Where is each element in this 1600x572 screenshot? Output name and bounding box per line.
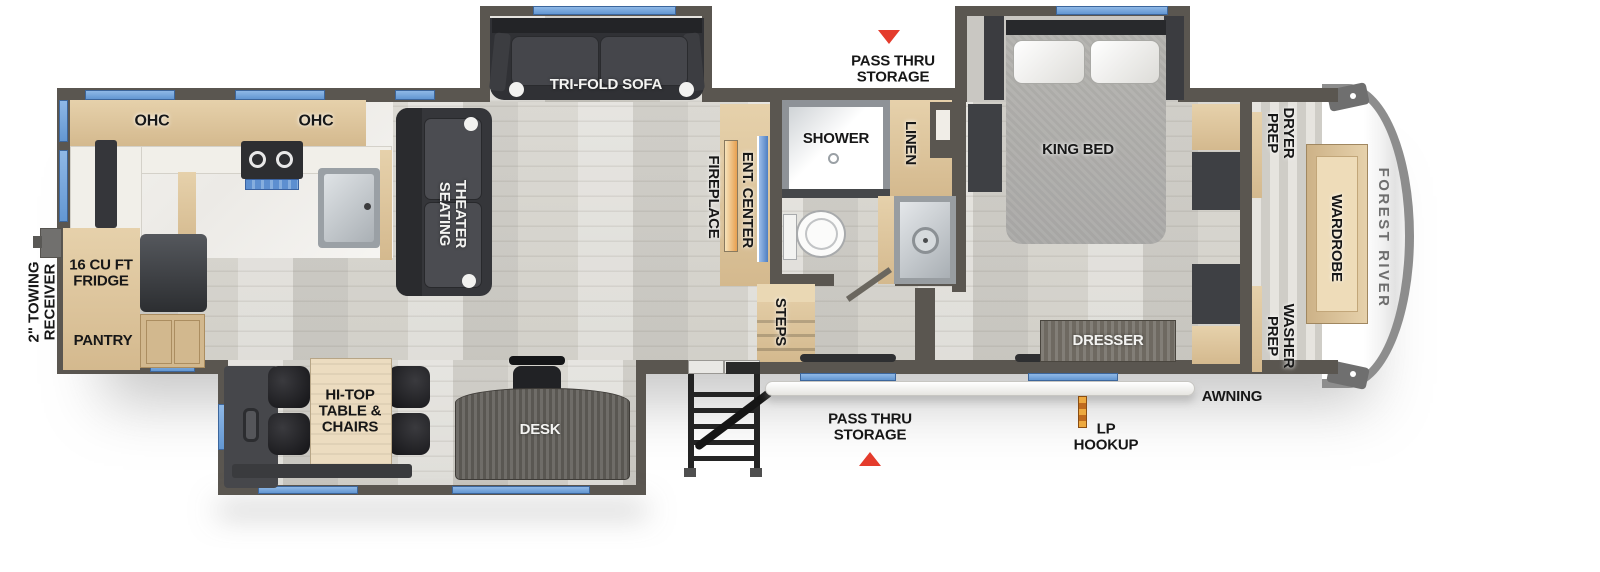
wardrobe-label: WARDROBE (1328, 194, 1344, 282)
stair-foot (684, 468, 696, 477)
shower (782, 100, 890, 196)
theater-cupholder (464, 117, 478, 131)
washer-prep-cabinet (1252, 286, 1262, 372)
cap-rivet-bottom (1350, 371, 1356, 377)
king-bed-headboard (1006, 20, 1166, 35)
window (1056, 6, 1168, 15)
nightstand (1164, 16, 1184, 100)
pillow (1013, 40, 1085, 84)
bedroom-cabinet (1192, 104, 1240, 150)
towing-receiver-pin (33, 236, 42, 248)
bedroom-cabinet (1192, 326, 1240, 364)
burner (276, 151, 293, 168)
toilet-seat (805, 218, 838, 250)
tv-cabinet-handle (243, 408, 259, 442)
hi-top-table-label: HI-TOP TABLE & CHAIRS (319, 387, 381, 434)
king-bed-label: KING BED (1042, 142, 1114, 158)
king-slide-wall-left (955, 6, 967, 102)
steps-label: STEPS (772, 298, 788, 346)
pass-thru-storage-top-label: PASS THRU STORAGE (851, 53, 935, 85)
window (533, 6, 676, 15)
sofa-cupholder (509, 82, 524, 97)
washer-prep-label: WASHER PREP (1264, 304, 1296, 369)
theater-seating-label: THEATER SEATING (436, 180, 468, 248)
pass-thru-arrow-bottom (859, 452, 881, 466)
sink-faucet (364, 203, 371, 210)
shower-door (782, 189, 890, 198)
linen-notch-shelf (936, 110, 950, 140)
nightstand (968, 104, 1002, 192)
stair-rung (694, 392, 754, 397)
shower-drain (828, 153, 839, 164)
sofa-backrest (492, 18, 702, 33)
cap-rivet-top (1350, 93, 1356, 99)
dining-chair (268, 413, 310, 455)
dryer-prep-cabinet (1252, 112, 1262, 198)
entry-stairs-rail (754, 374, 760, 472)
window (235, 90, 325, 100)
hall-bedroom-wall (915, 288, 935, 374)
stair-foot (750, 468, 762, 477)
rv-floorplan: FOREST RIVER 2" TOWING RECEIVER TRI-FOLD… (0, 0, 1600, 572)
window (452, 486, 590, 494)
burner (249, 151, 266, 168)
towing-receiver-label: 2" TOWING RECEIVER (26, 261, 58, 342)
nightstand (984, 16, 1004, 100)
awning-label: AWNING (1202, 389, 1262, 405)
bedroom-wardrobe-cabinet (1192, 264, 1240, 324)
theater-backrest (396, 108, 422, 296)
window (1028, 373, 1118, 381)
window (800, 373, 896, 381)
tri-fold-sofa-label: TRI-FOLD SOFA (550, 77, 662, 93)
forest-river-logo: FOREST RIVER (1375, 168, 1391, 309)
entry-door-split (723, 360, 725, 374)
window (85, 90, 175, 100)
step-line (757, 348, 815, 351)
oven-front (245, 179, 299, 190)
stair-rung (694, 456, 754, 461)
pillow (1090, 40, 1160, 84)
bedroom-wardrobe-cabinet (1192, 152, 1240, 210)
fireplace-label: FIREPLACE (705, 155, 721, 238)
dining-chair (388, 413, 430, 455)
theater-cupholder (462, 274, 476, 288)
window (59, 100, 68, 142)
refrigerator (140, 234, 207, 312)
pantry-door (174, 320, 200, 364)
toilet-tank (783, 214, 797, 260)
bath-wall-left (770, 100, 782, 288)
valance (800, 354, 896, 362)
dryer-prep-label: DRYER PREP (1264, 108, 1296, 159)
counter-appliance (95, 140, 117, 228)
pantry-label: PANTRY (74, 333, 133, 349)
bottom-slide-wall-right (636, 360, 646, 495)
linen-label: LINEN (902, 121, 918, 165)
fridge-label: 16 CU FT FRIDGE (69, 257, 132, 289)
window-sill (232, 464, 412, 478)
window (395, 90, 435, 100)
sofa-cupholder (679, 82, 694, 97)
tv (757, 136, 768, 262)
stair-landing (726, 362, 760, 374)
ohc-left-label: OHC (135, 114, 170, 131)
dining-chair (388, 366, 430, 408)
pass-thru-storage-bottom-label: PASS THRU STORAGE (828, 411, 912, 443)
window (59, 150, 68, 222)
wall-bedroom-front (1240, 88, 1252, 374)
pass-thru-arrow-top (878, 30, 900, 44)
towing-receiver-hitch (40, 228, 62, 258)
counter-edge (380, 150, 392, 260)
dresser-label: DRESSER (1072, 333, 1143, 349)
desk-label: DESK (520, 422, 561, 438)
dining-chair (268, 366, 310, 408)
wall-top-3 (1190, 88, 1338, 102)
shower-label: SHOWER (803, 131, 869, 147)
vanity-drain (923, 238, 928, 243)
ent-center-label: ENT. CENTER (739, 152, 755, 248)
lp-hookup-label: LP HOOKUP (1074, 421, 1139, 453)
pantry-door (146, 320, 172, 364)
fireplace (724, 140, 738, 252)
ohc-right-label: OHC (299, 114, 334, 131)
desk-chair-back (509, 356, 565, 365)
awning (765, 381, 1195, 396)
